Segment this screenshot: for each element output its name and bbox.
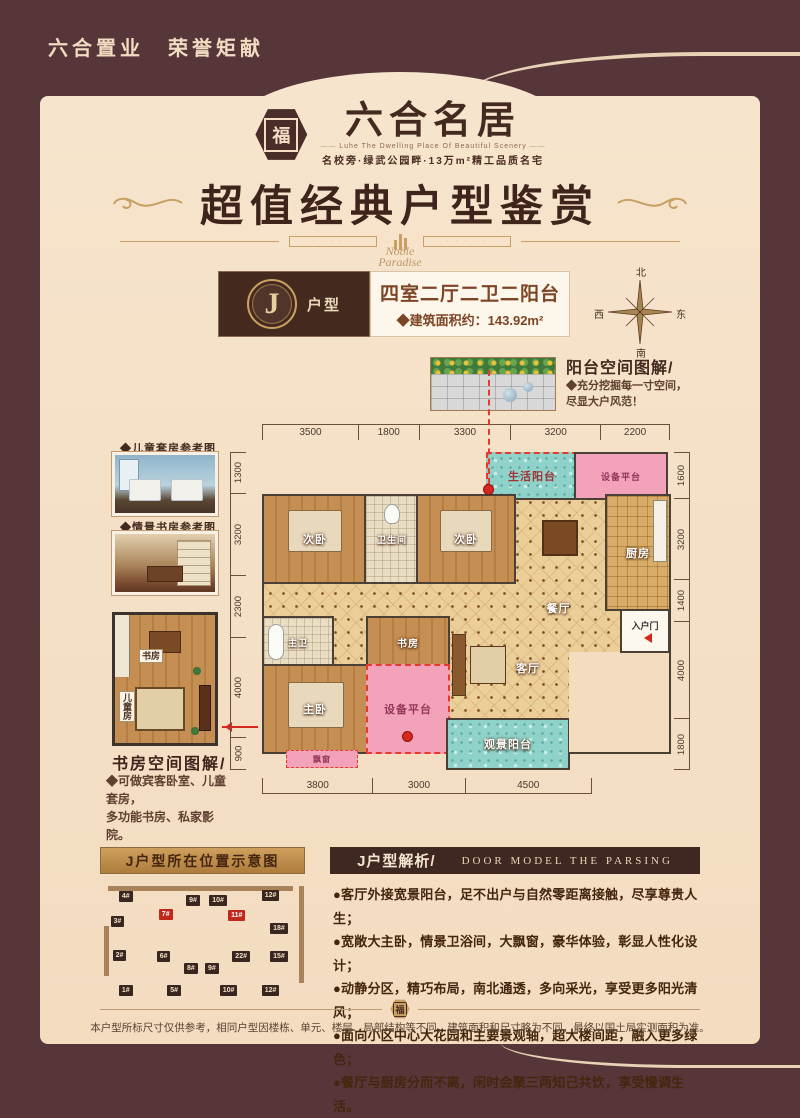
dimension-segment: 1600: [674, 452, 690, 498]
poster-page: 六合置业 荣誉矩献 福 六合名居 Luhe The Dwelling Place…: [0, 0, 800, 1086]
dimension-segment: 3200: [510, 424, 600, 440]
fu-hexagon-icon: 福: [254, 108, 308, 162]
seal-divider: 福: [100, 999, 700, 1019]
room-dining: 餐厅: [512, 494, 605, 624]
entry-arrow-icon: [639, 633, 652, 643]
brand-tagline-en: Luhe The Dwelling Place Of Beautiful Sce…: [320, 143, 545, 150]
analysis-header: J户型解析/ DOOR MODEL THE PARSING: [330, 847, 700, 874]
dims-bottom: 380030004500: [262, 778, 592, 794]
decorative-swoosh-top: [470, 52, 800, 94]
room-bedroom-3: 次卧: [416, 494, 516, 584]
dimension-segment: 3200: [674, 498, 690, 579]
brand-logo: 福 六合名居 Luhe The Dwelling Place Of Beauti…: [0, 102, 800, 167]
balcony-callout-dot: [483, 484, 494, 495]
site-building: 1#: [119, 985, 133, 996]
bathtub-icon: [268, 624, 284, 660]
room-equipment-platform-bottom: 设备平台: [366, 664, 450, 754]
toilet-icon: [384, 504, 400, 524]
room-equipment-platform-top: 设备平台: [574, 452, 668, 500]
disclaimer: 本户型所标尺寸仅供参考，相同户型因楼栋、单元、楼层、局部结构等不同，建筑面积和尺…: [60, 1020, 740, 1035]
bed-icon: [129, 479, 161, 501]
compass-east: 东: [676, 306, 686, 321]
dimension-segment: 4000: [230, 637, 246, 737]
room-bedroom-2: 次卧: [262, 494, 368, 584]
compass: 北 南 西 东: [592, 264, 688, 360]
dimension-segment: 4000: [674, 621, 690, 719]
dimension-segment: 900: [230, 737, 246, 770]
flourish-right-icon: [616, 190, 688, 216]
site-building: 9#: [186, 895, 200, 906]
page-title: 超值经典户型鉴赏: [200, 172, 600, 234]
bed-icon: [135, 687, 185, 731]
room-master-bath: 主卫: [262, 616, 334, 668]
bed-icon: [171, 479, 203, 501]
site-building: 9#: [205, 963, 219, 974]
bullet-item: ●餐厅与厨房分而不离，闲时会聚三两知己共饮，享受慢调生活。: [333, 1071, 705, 1118]
dimension-segment: 3200: [230, 493, 246, 575]
fragment-note: ◆可做宾客卧室、儿童套房， 多功能书房、私家影院。: [106, 772, 236, 844]
site-building: 12#: [262, 890, 280, 901]
study-fragment-plan: 书房 儿童房: [112, 612, 218, 746]
dims-left: 1300320023004000900: [230, 452, 246, 770]
dimension-segment: 2200: [600, 424, 670, 440]
dimension-segment: 3800: [262, 778, 372, 794]
dimension-segment: 4500: [465, 778, 592, 794]
room-master-bedroom: 主卧: [262, 664, 368, 754]
road: [299, 886, 304, 983]
kitchen-counter-icon: [653, 500, 667, 562]
site-building: 18#: [270, 923, 288, 934]
floor-plan: 生活阳台 设备平台 次卧 卫生间 次卧 餐厅 厨房 主卫: [262, 452, 670, 770]
rug-icon: [470, 646, 506, 684]
garland-plants-icon: [431, 358, 555, 374]
compass-north: 北: [636, 264, 646, 279]
developer-slogan: 六合置业 荣誉矩献: [48, 32, 264, 61]
balcony-note: 阳台空间图解/ ◆充分挖掘每一寸空间， 尽显大户风范！: [566, 354, 706, 410]
compass-west: 西: [594, 306, 604, 321]
site-building: 4#: [119, 891, 133, 902]
room-living: 客厅: [446, 616, 548, 722]
unit-info-box: 四室二厅二卫二阳台 ◆建筑面积约：143.92m²: [370, 271, 570, 337]
site-building: 8#: [184, 963, 198, 974]
study-room-photo: [112, 531, 218, 595]
site-building: 11#: [228, 910, 245, 921]
wardrobe-icon: [115, 615, 130, 677]
fragment-kids-label: 儿童房: [119, 691, 135, 722]
room-living-balcony: 生活阳台: [486, 452, 578, 500]
unit-room-count: 四室二厅二卫二阳台: [380, 279, 560, 306]
dims-top: 35001800330032002200: [262, 424, 670, 440]
balcony-detail-figure: [430, 357, 556, 411]
balcony-callout-line: [488, 370, 490, 484]
room-bay-window: 飘窗: [286, 750, 358, 768]
brand-name: 六合名居: [320, 102, 545, 140]
site-plan-header: J户型所在位置示意图: [100, 847, 305, 874]
site-plan: 4#9#10#12#3#7#11#18#2#6#22#15#8#9#1#5#10…: [100, 884, 310, 1002]
unit-area: ◆建筑面积约：143.92m²: [397, 310, 544, 329]
site-building: 2#: [113, 950, 127, 961]
site-building: 3#: [111, 916, 125, 927]
bullet-item: ●宽敞大主卧，情景卫浴间，大飘窗，豪华体验，彰显人性化设计；: [333, 930, 705, 977]
desk-icon: [147, 566, 183, 582]
bullet-item: ●客厅外接宽景阳台，足不出户与自然零距离接触，尽享尊贵人生；: [333, 883, 705, 930]
dims-right: 16003200140040001800: [674, 452, 690, 770]
fragment-study-label: 书房: [139, 649, 163, 663]
fragment-caption: 书房空间图解/: [112, 750, 226, 774]
site-building: 15#: [270, 951, 288, 962]
sofa-icon: [452, 634, 466, 696]
site-building: 10#: [209, 895, 227, 906]
platform-callout-dot: [402, 731, 413, 742]
site-building: 10#: [220, 985, 238, 996]
fu-seal-icon: 福: [390, 999, 410, 1019]
site-building: 5#: [167, 985, 181, 996]
dimension-segment: 1800: [358, 424, 419, 440]
unit-letter-medallion: J: [247, 279, 297, 329]
dimension-segment: 3300: [419, 424, 511, 440]
dimension-segment: 3000: [372, 778, 464, 794]
room-study: 书房: [366, 616, 450, 668]
site-building: 7#: [159, 909, 173, 920]
page-title-row: 超值经典户型鉴赏: [0, 172, 800, 234]
unit-type-label: 户型: [307, 294, 341, 315]
dimension-segment: 2300: [230, 575, 246, 638]
flourish-left-icon: [112, 190, 184, 216]
dimension-segment: 1400: [674, 579, 690, 621]
dimension-segment: 1800: [674, 718, 690, 770]
tv-cabinet-icon: [199, 685, 211, 731]
plan-cutout: [569, 652, 669, 752]
room-view-balcony: 观景阳台: [446, 718, 570, 770]
room-bathroom-2: 卫生间: [364, 494, 420, 584]
brand-tagline-cn: 名校旁·绿武公园畔·13万m²精工品质名宅: [320, 152, 545, 167]
site-building: 22#: [232, 951, 250, 962]
entry-door: 入户门: [620, 609, 670, 653]
room-kitchen: 厨房: [605, 494, 671, 611]
road: [104, 926, 109, 976]
kids-room-photo: [112, 452, 218, 516]
dimension-segment: 1300: [230, 452, 246, 493]
site-building: 12#: [262, 985, 280, 996]
balcony-tiles: [431, 374, 555, 410]
dining-table-icon: [542, 520, 578, 556]
unit-type-badge: J 户型: [218, 271, 370, 337]
dimension-segment: 3500: [262, 424, 358, 440]
site-building: 6#: [157, 951, 171, 962]
